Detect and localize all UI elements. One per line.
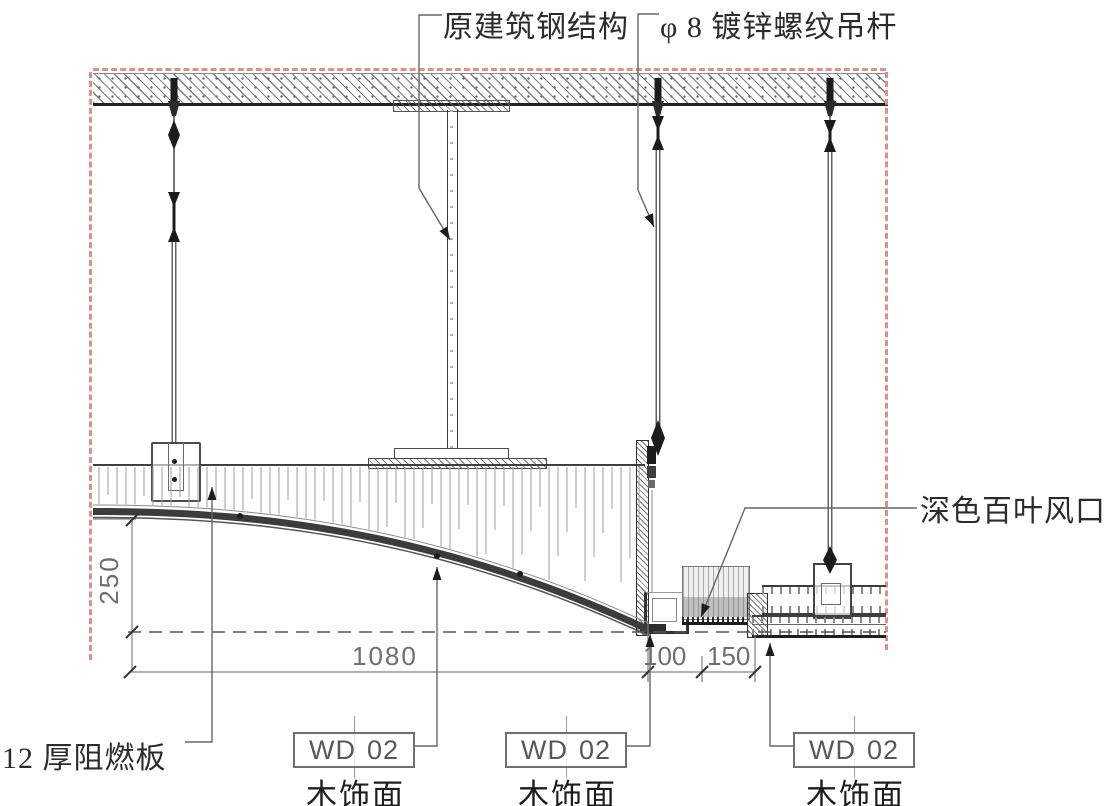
finish-tag-code: WD (809, 735, 856, 766)
finish-tag-code: WD (309, 735, 356, 766)
finish-tag-wd02: WD 02 (505, 732, 627, 768)
label-steel-structure: 原建筑钢结构 (443, 2, 629, 46)
finish-tag-code: WD (521, 735, 568, 766)
label-louver-vent: 深色百叶风口 (920, 486, 1106, 530)
finish-caption-wood: 木饰面 (806, 770, 905, 806)
dimension-150: 150 (707, 641, 750, 672)
ceiling-detail-drawing: 原建筑钢结构 φ 8 镀锌螺纹吊杆 深色百叶风口 12 厚阻燃板 250 108… (0, 0, 1109, 806)
label-hanger-rod: φ 8 镀锌螺纹吊杆 (660, 2, 897, 46)
finish-tag-wd02: WD 02 (793, 732, 915, 768)
finish-caption-wood: 木饰面 (306, 770, 405, 806)
drawing-line-art (0, 0, 1109, 806)
dimension-250: 250 (94, 540, 122, 620)
finish-caption-wood: 木饰面 (518, 770, 617, 806)
dimension-1080: 1080 (352, 641, 418, 672)
finish-tag-number: 02 (367, 735, 399, 766)
finish-tag-number: 02 (579, 735, 611, 766)
label-fire-board: 12 厚阻燃板 (2, 733, 167, 777)
finish-tag-number: 02 (867, 735, 899, 766)
dimension-100: 100 (643, 641, 686, 672)
finish-tag-wd02: WD 02 (293, 732, 415, 768)
